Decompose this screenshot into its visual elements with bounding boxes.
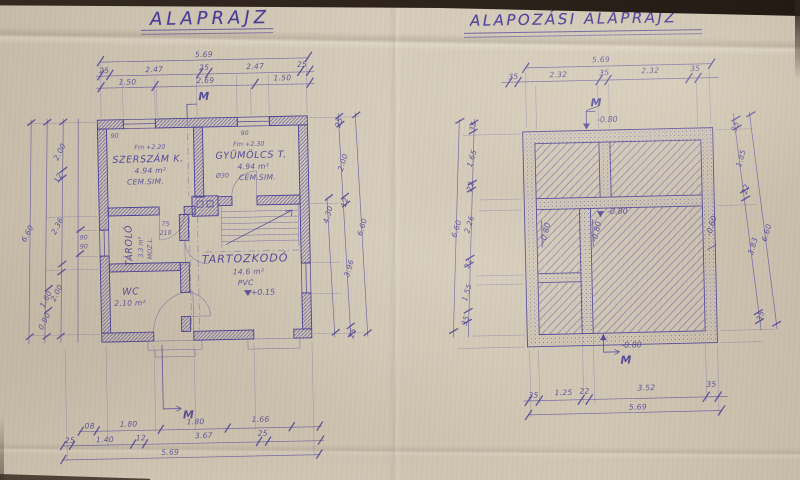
dim-text: 1.65 (465, 148, 479, 168)
dim-text: 35 (755, 310, 767, 322)
blueprint-scan: ALAPRAJZ ALAPOZÁSI ALAPRAJZ (0, 0, 800, 480)
window-size-mark: 90 (80, 243, 88, 250)
dim-text: 5.69 (161, 448, 179, 457)
dim-text: 35 (690, 64, 700, 73)
room-area: 3.3 m² (138, 236, 145, 257)
room-label-wc: WC (122, 286, 139, 297)
room-height-mark: Fm +2.30 (233, 141, 264, 149)
exterior-steps (148, 338, 300, 357)
dim-text: 22 (740, 183, 752, 195)
window-size-mark: 90 (80, 234, 88, 241)
blueprint-linework: 5.69 25 2.47 25 2.47 25 1.50 2.69 1.50 0… (0, 0, 800, 480)
dim-text: 35 (729, 120, 741, 132)
dim-text: 35 (528, 391, 538, 400)
dim-text: 1.85 (734, 148, 748, 168)
dim-text: 6.60 (450, 219, 464, 239)
room-area: 2.10 m² (114, 298, 146, 308)
dim-text: 3.67 (195, 431, 213, 440)
room-floor-finish: PVC (238, 278, 254, 287)
dim-text: 1.40 (96, 435, 114, 444)
room-floor-finish: MOZ.L. (147, 237, 154, 259)
dim-text: 25 (333, 116, 345, 128)
dim-text: 2.26 (462, 215, 476, 235)
room-area: 4.94 m² (134, 166, 166, 176)
chimney-block (192, 196, 218, 217)
dim-text: 3.52 (637, 383, 655, 392)
dim-text: 1.80 (120, 419, 138, 428)
dim-text: 2.00 (336, 152, 350, 172)
dim-text: 25 (65, 436, 75, 445)
section-letter-top: M (590, 96, 601, 109)
dim-text: 25 (99, 66, 109, 75)
room-label-tartozkodo: TARTOZKODÓ (202, 251, 289, 266)
dim-text: 1.55 (460, 283, 474, 303)
dim-text: 35 (508, 72, 518, 81)
dim-text: 2.69 (196, 76, 214, 85)
room-area: 4.94 m² (237, 162, 269, 172)
room-label-tarolo: TÁROLÓ (122, 225, 135, 267)
dim-text: 25 (199, 63, 209, 72)
dim-text: 0.90 (36, 311, 52, 331)
section-marker-top (187, 104, 197, 118)
dim-text: 25 (347, 327, 359, 339)
dim-text: 1.25 (555, 388, 573, 397)
dim-text: 2.32 (641, 66, 659, 75)
dim-text: 12 (136, 433, 146, 442)
staircase (221, 204, 299, 248)
dim-text: 25 (297, 60, 307, 69)
dim-text: 6.60 (760, 223, 774, 243)
dim-text: 6.60 (355, 217, 369, 237)
dim-text: 22 (465, 180, 477, 192)
level-text-bottom: -0.80 (621, 340, 642, 349)
section-letter-bottom: M (620, 354, 631, 367)
dim-text: 1.50 (118, 77, 136, 86)
dim-text: 5.69 (195, 50, 213, 59)
dim-text: 35 (460, 314, 472, 326)
room-area: 14.6 m² (233, 267, 265, 277)
room-label-szerszam: SZERSZÁM K. (112, 152, 183, 165)
vent-mark: Ø30 (215, 171, 229, 179)
door-size-mark: 75 (161, 221, 169, 228)
level-wedge-top (583, 123, 590, 129)
section-letter-top: M (198, 90, 209, 103)
paper-edge-right (795, 0, 800, 80)
foundation-plan-group: 5.69 35 2.32 35 2.32 35 35 1.25 22 3.52 … (443, 51, 783, 421)
dim-text: 2.47 (246, 62, 264, 71)
dim-text: 1.66 (252, 415, 270, 424)
window-size-mark: 90 (111, 133, 119, 140)
room-label-gyumolcs: GYÜMÖLCS T. (215, 149, 286, 161)
dim-text: 4.30 (321, 205, 335, 225)
floor-plan-group: 5.69 25 2.47 25 2.47 25 1.50 2.69 1.50 0… (15, 47, 374, 465)
dim-text: 5.69 (592, 55, 610, 64)
dim-text: 3.83 (746, 236, 760, 256)
paper-edge-left (0, 415, 4, 480)
dim-text: 5.69 (629, 402, 647, 411)
dim-text: 6.60 (19, 224, 35, 244)
room-floor-finish: CEM.SIM. (239, 172, 276, 182)
dim-text: 12 (339, 196, 351, 208)
room-floor-finish: CEM.SIM. (127, 177, 164, 187)
window-size-mark: 90 (240, 130, 248, 137)
level-text-top: -0.80 (597, 115, 618, 124)
dim-text: 08 (84, 421, 94, 430)
dim-text: 35 (599, 68, 609, 77)
dim-text: 22 (462, 257, 474, 269)
dim-text: 2.47 (145, 65, 163, 74)
foundation-room-hatch (535, 140, 705, 335)
dim-text: 25 (258, 429, 268, 438)
dim-text: 2.36 (49, 216, 65, 236)
room-height-mark: Fm +2.20 (134, 144, 165, 152)
level-text-mid: -0.80 (607, 207, 628, 216)
floor-dim-lines (23, 57, 370, 461)
dim-text: 2.00 (52, 142, 68, 162)
dim-text: 1.50 (273, 73, 291, 82)
dim-text: 35 (706, 380, 716, 389)
dim-text: 3.96 (342, 258, 356, 278)
dim-text: 22 (579, 387, 589, 396)
dim-text: 35 (467, 120, 479, 132)
section-marker-bottom (162, 345, 181, 412)
level-text-entry: +0.15 (251, 288, 276, 298)
dim-text: 2.32 (549, 70, 567, 79)
section-letter-bottom: M (183, 408, 194, 421)
door-size-mark: 210 (160, 230, 172, 237)
